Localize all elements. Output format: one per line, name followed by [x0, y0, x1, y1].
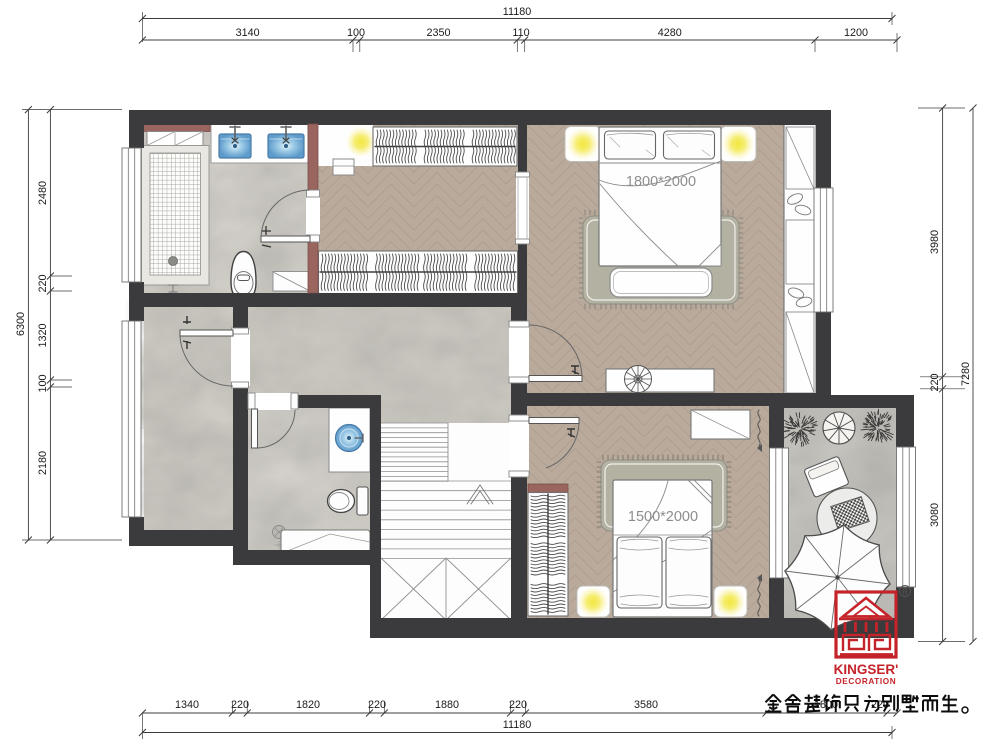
svg-text:1880: 1880 [435, 699, 459, 711]
svg-text:1340: 1340 [175, 699, 199, 711]
svg-text:R: R [902, 588, 908, 597]
svg-text:KINGSER': KINGSER' [834, 662, 899, 677]
svg-text:1500*2000: 1500*2000 [628, 509, 698, 525]
svg-text:220: 220 [368, 699, 386, 711]
svg-text:2480: 2480 [37, 181, 49, 205]
svg-text:3980: 3980 [929, 230, 941, 254]
svg-text:2350: 2350 [426, 27, 450, 39]
svg-text:220: 220 [231, 699, 249, 711]
svg-text:100: 100 [347, 27, 365, 39]
svg-text:1320: 1320 [37, 323, 49, 347]
svg-text:2180: 2180 [37, 451, 49, 475]
svg-text:220: 220 [929, 373, 941, 391]
svg-text:11180: 11180 [503, 719, 531, 731]
svg-text:1800*2000: 1800*2000 [626, 174, 696, 190]
svg-text:220: 220 [509, 699, 527, 711]
svg-text:3140: 3140 [236, 27, 260, 39]
svg-text:DECORATION: DECORATION [836, 677, 896, 686]
svg-text:100: 100 [37, 374, 49, 392]
svg-text:4280: 4280 [658, 27, 682, 39]
svg-text:220: 220 [37, 274, 49, 292]
svg-text:6300: 6300 [15, 312, 27, 336]
svg-text:11180: 11180 [503, 6, 531, 18]
svg-text:110: 110 [512, 27, 529, 39]
svg-text:1200: 1200 [844, 27, 868, 39]
svg-text:1820: 1820 [296, 699, 320, 711]
svg-text:7280: 7280 [960, 362, 972, 386]
svg-text:3080: 3080 [929, 503, 941, 527]
svg-text:3580: 3580 [634, 699, 658, 711]
